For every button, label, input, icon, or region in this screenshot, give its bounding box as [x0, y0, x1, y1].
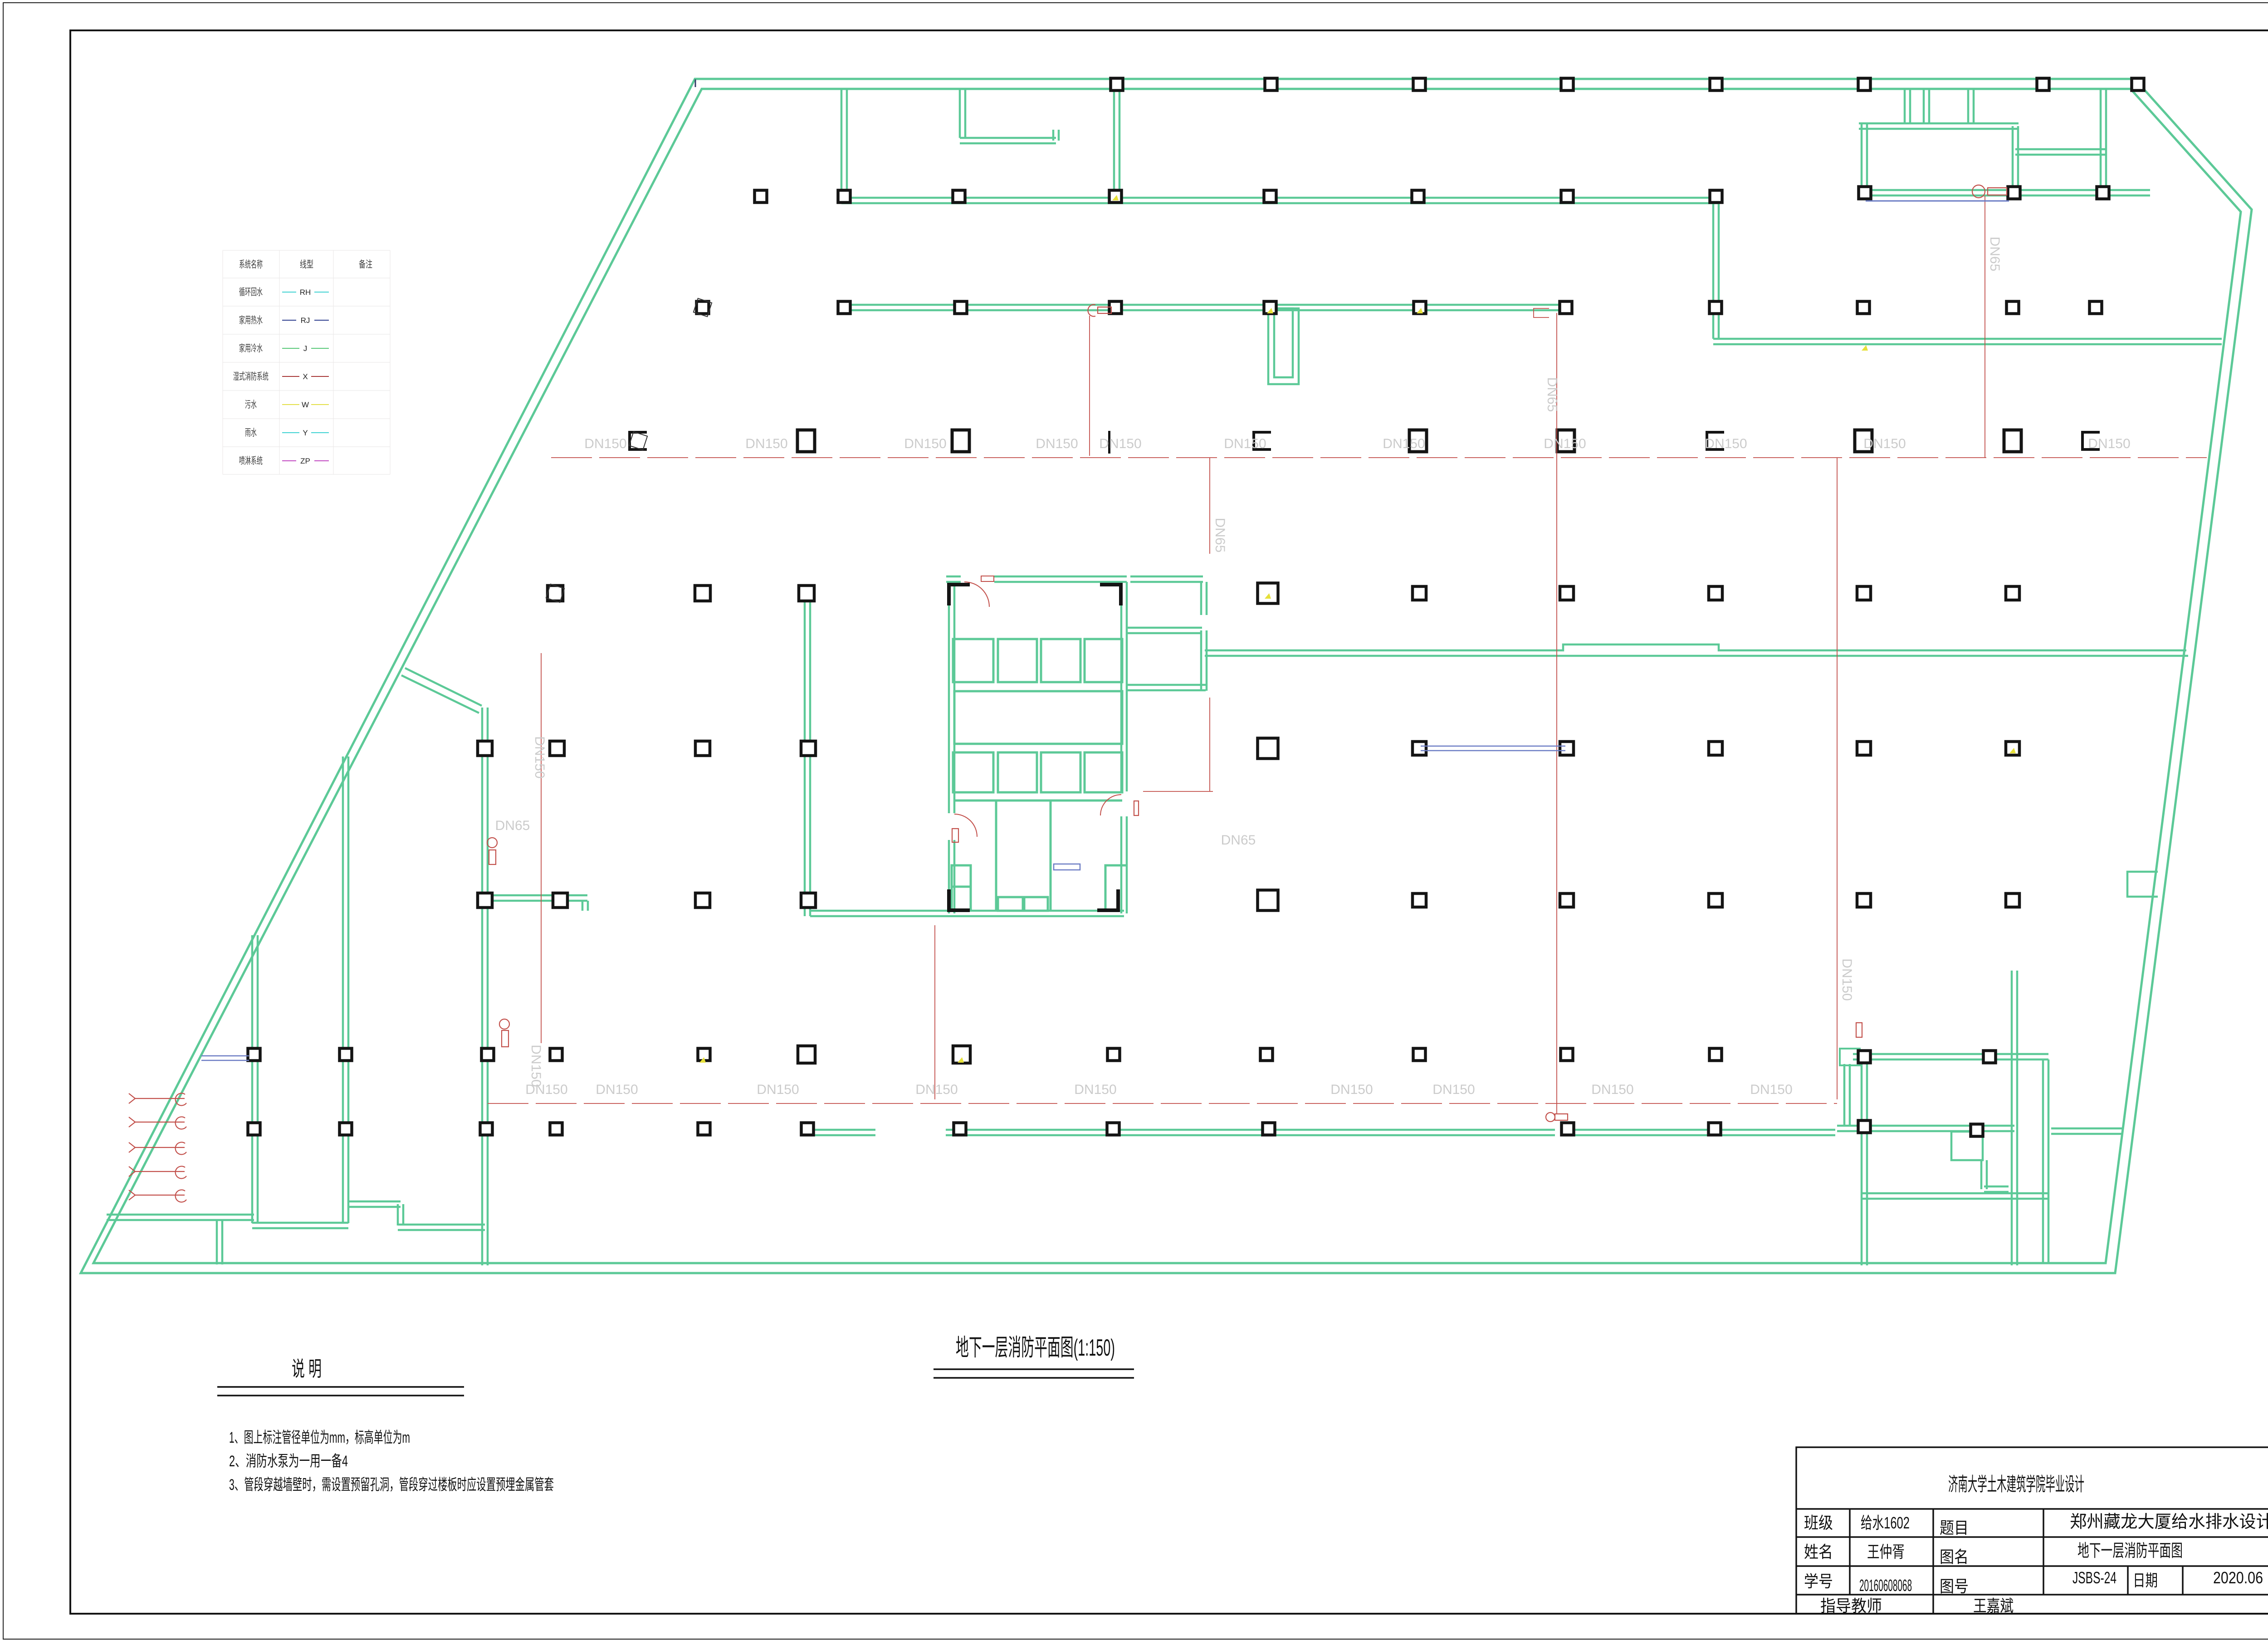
svg-text:DN150: DN150	[915, 1082, 958, 1097]
svg-text:2、消防水泵为一用一备4: 2、消防水泵为一用一备4	[229, 1453, 348, 1470]
svg-text:DN65: DN65	[1987, 237, 2002, 272]
svg-text:DN150: DN150	[757, 1082, 799, 1097]
svg-text:济南大学土木建筑学院毕业设计: 济南大学土木建筑学院毕业设计	[1948, 1474, 2084, 1495]
svg-text:郑州藏龙大厦给水排水设计: 郑州藏龙大厦给水排水设计	[2070, 1513, 2268, 1532]
svg-text:1、图上标注管径单位为mm，标高单位为m: 1、图上标注管径单位为mm，标高单位为m	[229, 1429, 410, 1446]
svg-text:W: W	[302, 400, 309, 409]
svg-text:学号: 学号	[1804, 1572, 1833, 1591]
svg-text:DN65: DN65	[495, 818, 530, 833]
svg-text:图名: 图名	[1940, 1547, 1969, 1566]
svg-text:王嘉斌: 王嘉斌	[1973, 1596, 2014, 1615]
svg-text:DN150: DN150	[904, 436, 946, 451]
svg-text:DN150: DN150	[528, 1045, 543, 1087]
svg-text:Y: Y	[303, 429, 308, 437]
svg-text:DN150: DN150	[1705, 436, 1747, 451]
svg-text:指导教师: 指导教师	[1820, 1596, 1882, 1615]
svg-text:DN150: DN150	[1432, 1082, 1475, 1097]
svg-text:DN150: DN150	[1839, 958, 1854, 1001]
svg-text:王仲胥: 王仲胥	[1867, 1542, 1905, 1561]
svg-text:地下一层消防平面图: 地下一层消防平面图	[2077, 1542, 2183, 1561]
svg-text:DN150: DN150	[596, 1082, 638, 1097]
svg-text:DN150: DN150	[584, 436, 626, 451]
svg-text:DN150: DN150	[1036, 436, 1078, 451]
svg-text:日期: 日期	[2133, 1571, 2158, 1590]
svg-text:DN150: DN150	[1544, 436, 1586, 451]
svg-text:DN150: DN150	[745, 436, 787, 451]
svg-text:给水1602: 给水1602	[1861, 1513, 1910, 1532]
svg-text:RJ: RJ	[301, 316, 310, 325]
svg-text:图号: 图号	[1940, 1577, 1969, 1596]
svg-text:DN150: DN150	[1863, 436, 1906, 451]
svg-text:DN65: DN65	[1212, 518, 1227, 553]
svg-text:姓名: 姓名	[1804, 1542, 1833, 1561]
svg-text:雨水: 雨水	[245, 428, 257, 438]
svg-text:J: J	[303, 344, 308, 353]
svg-text:RH: RH	[300, 288, 311, 297]
svg-text:家用热水: 家用热水	[239, 315, 263, 326]
svg-text:DN150: DN150	[1074, 1082, 1116, 1097]
svg-text:湿式消防系统: 湿式消防系统	[233, 371, 269, 382]
svg-text:题目: 题目	[1940, 1518, 1969, 1537]
svg-text:系统名称: 系统名称	[239, 259, 263, 270]
svg-text:DN150: DN150	[532, 736, 547, 778]
svg-text:说 明: 说 明	[292, 1357, 322, 1381]
svg-text:DN65: DN65	[1221, 833, 1256, 848]
svg-text:家用冷水: 家用冷水	[239, 343, 263, 354]
svg-text:X: X	[303, 372, 308, 381]
svg-text:DN150: DN150	[1383, 436, 1425, 451]
svg-text:DN150: DN150	[1750, 1082, 1792, 1097]
svg-text:DN150: DN150	[1591, 1082, 1633, 1097]
svg-text:地下一层消防平面图(1:150): 地下一层消防平面图(1:150)	[956, 1335, 1115, 1361]
svg-text:3、管段穿越墙壁时，需设置预留孔洞，管段穿过楼板时应设置预埋: 3、管段穿越墙壁时，需设置预留孔洞，管段穿过楼板时应设置预埋金属管套	[229, 1476, 554, 1494]
svg-text:循环回水: 循环回水	[239, 287, 263, 298]
svg-text:2020.06: 2020.06	[2213, 1568, 2263, 1587]
svg-text:20160608068: 20160608068	[1859, 1576, 1912, 1595]
svg-text:备注: 备注	[359, 259, 372, 270]
svg-text:JSBS-24: JSBS-24	[2072, 1568, 2116, 1587]
svg-text:DN150: DN150	[1330, 1082, 1373, 1097]
svg-text:线型: 线型	[300, 259, 313, 270]
svg-text:DN150: DN150	[2088, 436, 2130, 451]
svg-text:ZP: ZP	[300, 457, 310, 465]
svg-text:DN150: DN150	[1224, 436, 1266, 451]
svg-text:班级: 班级	[1804, 1513, 1833, 1532]
svg-text:喷淋系统: 喷淋系统	[239, 456, 263, 466]
svg-text:污水: 污水	[245, 400, 257, 410]
svg-text:DN65: DN65	[1545, 377, 1559, 412]
svg-text:DN150: DN150	[1099, 436, 1141, 451]
